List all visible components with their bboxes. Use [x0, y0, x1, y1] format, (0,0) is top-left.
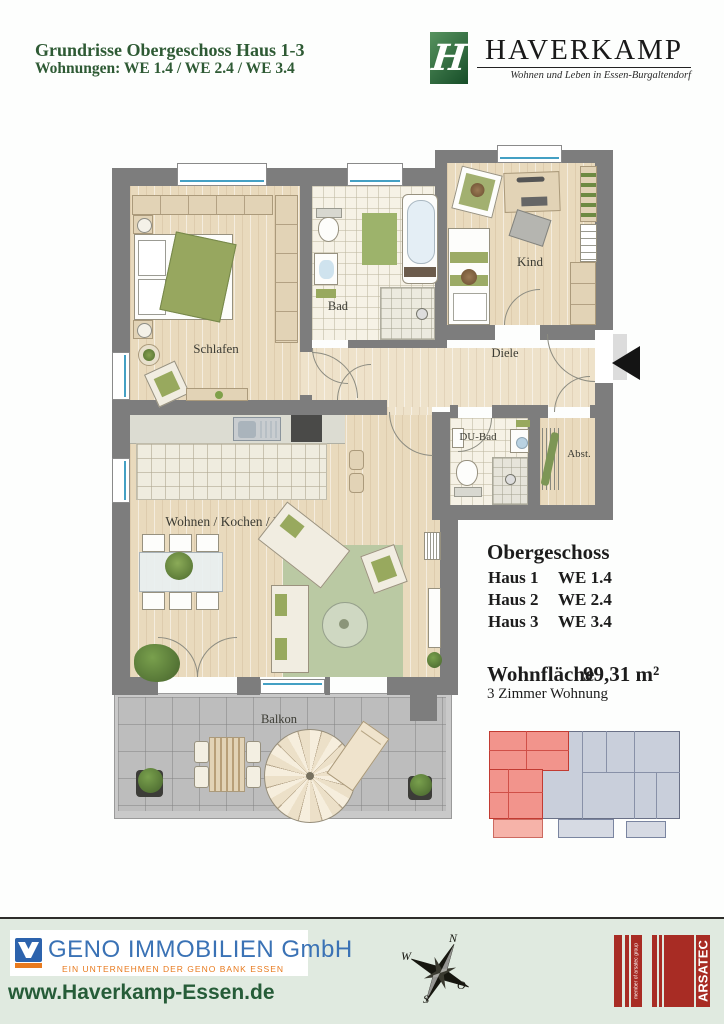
- geno-orange-bar: [15, 963, 42, 968]
- kitchen-island: [136, 443, 327, 500]
- floor-door-gap-schlafen: [300, 352, 312, 398]
- balcony-chair-3: [246, 741, 261, 763]
- info-area-label: Wohnfläche: [487, 662, 594, 687]
- dining-chair-4: [142, 592, 165, 610]
- info-floor-title: Obergeschoss: [487, 540, 610, 565]
- wall-bad-bottom-a: [300, 340, 312, 348]
- website-link[interactable]: www.Haverkamp-Essen.de: [8, 981, 275, 1005]
- shelf-kind: [580, 224, 597, 262]
- info-house-3: Haus 3: [488, 612, 539, 632]
- sink-bad: [314, 253, 338, 285]
- monogram-letter: H: [430, 37, 468, 79]
- wall-diele-south-a: [450, 405, 458, 418]
- info-house-2: Haus 2: [488, 590, 539, 610]
- window-kind: [497, 145, 562, 163]
- wall-dubad-left: [432, 412, 450, 510]
- wall-schlafen-bad: [300, 186, 312, 352]
- flyer-page: Grundrisse Obergeschoss Haus 1-3 Wohnung…: [0, 0, 724, 1024]
- overview-line-2: [634, 731, 635, 819]
- room-label-balkon: Balkon: [253, 712, 305, 727]
- window-schlafen-west: [112, 352, 130, 400]
- bath-rug: [362, 213, 397, 265]
- window-wohnen-west: [112, 458, 130, 503]
- wall-left: [112, 168, 130, 695]
- wall-living-bottom-d: [387, 677, 458, 695]
- wall-kind-bottom-a: [435, 325, 495, 340]
- arsatec-suffix: GmbH: [694, 936, 700, 950]
- page-subtitle: Wohnungen: WE 1.4 / WE 2.4 / WE 3.4: [35, 60, 295, 78]
- wall-bad-bottom-b: [348, 340, 435, 348]
- overview-red-line-4: [489, 792, 543, 793]
- bed-kind: [448, 228, 490, 325]
- balcony-chair-4: [246, 766, 261, 788]
- table-plant: [165, 552, 193, 580]
- dining-chair-5: [169, 592, 192, 610]
- small-plant: [427, 652, 442, 668]
- wall-diele-south-b: [492, 405, 548, 418]
- window-bad: [347, 163, 403, 186]
- wardrobe-right: [275, 195, 298, 343]
- page-title: Grundrisse Obergeschoss Haus 1-3: [35, 40, 305, 61]
- compass-n: N: [449, 931, 457, 946]
- overview-red-line-1: [489, 750, 569, 751]
- overview-line-3: [582, 772, 680, 773]
- wall-diele-south-c: [590, 405, 595, 418]
- info-unit-1: WE 1.4: [558, 568, 612, 588]
- dining-chair-1: [142, 534, 165, 552]
- overview-balcony-mid: [558, 819, 614, 838]
- desk-kind: [503, 171, 560, 213]
- towel-bad: [316, 289, 336, 298]
- wall-balcony-stub: [410, 695, 437, 721]
- toilet-bad: [318, 217, 339, 242]
- overview-unit-red-top: [489, 731, 569, 771]
- floor-plant: [134, 644, 180, 682]
- geno-company-name: GENO IMMOBILIEN GmbH: [48, 936, 353, 964]
- dining-chair-2: [169, 534, 192, 552]
- wall-right-upper: [595, 163, 613, 330]
- blanket: [159, 231, 236, 322]
- stool-2: [349, 473, 364, 493]
- brand-tagline: Wohnen und Leben in Essen-Burgaltendorf: [477, 70, 691, 81]
- overview-red-line-2: [526, 731, 527, 769]
- room-label-diele: Diele: [480, 346, 530, 361]
- wardrobe-top: [132, 195, 273, 215]
- compass-o: O: [457, 978, 466, 993]
- sideboard-schlafen: [186, 388, 248, 401]
- balcony-chair-1: [194, 741, 209, 763]
- wall-board: [428, 588, 441, 648]
- shower-dubad: [492, 457, 528, 505]
- entrance-gap: [595, 330, 613, 383]
- wall-living-right: [440, 505, 458, 695]
- radiator: [424, 532, 441, 560]
- bed: [134, 234, 233, 320]
- entrance-arrow-icon: [612, 346, 640, 380]
- overview-line-5: [656, 772, 657, 819]
- wall-living-bottom-b: [237, 677, 260, 695]
- room-label-kind: Kind: [505, 254, 555, 270]
- stool-1: [349, 450, 364, 470]
- overview-unit-red-bottom: [489, 769, 543, 819]
- wall-right-lower: [595, 383, 613, 510]
- wall-kitchen-top: [112, 400, 387, 415]
- overview-balcony-red: [493, 819, 543, 838]
- side-table: [138, 344, 160, 366]
- compass-s: S: [423, 992, 429, 1007]
- washer-dubad: [510, 429, 529, 453]
- room-label-dubad: DU-Bad: [454, 431, 502, 443]
- info-area-value: 99,31 m²: [583, 662, 659, 687]
- toilet-tank-dubad: [454, 487, 482, 497]
- info-apartment-type: 3 Zimmer Wohnung: [487, 686, 608, 703]
- bookshelf-kind: [580, 166, 597, 222]
- geno-logo: GENO IMMOBILIEN GmbH EIN UNTERNEHMEN DER…: [10, 930, 308, 976]
- arsatec-bar: [614, 935, 622, 1007]
- info-unit-3: WE 3.4: [558, 612, 612, 632]
- wall-living-bottom-c: [325, 677, 330, 695]
- overview-balcony-right: [626, 821, 666, 838]
- geno-company-subtitle: EIN UNTERNEHMEN DER GENO BANK ESSEN: [62, 964, 284, 974]
- dining-chair-6: [196, 592, 219, 610]
- room-label-bad: Bad: [316, 299, 360, 314]
- pillow-1: [138, 240, 166, 276]
- balcony-table: [209, 737, 245, 792]
- toilet-dubad: [456, 460, 478, 486]
- overview-line-1: [582, 731, 583, 819]
- info-unit-2: WE 2.4: [558, 590, 612, 610]
- balcony-plant-right: [410, 774, 432, 796]
- arsatec-gap: [642, 935, 652, 1007]
- arsatec-block: [664, 935, 694, 1007]
- kitchen-stove: [291, 415, 322, 442]
- compass-star-icon: [395, 928, 485, 1018]
- compass-rose: N W O S: [395, 928, 485, 1018]
- dining-chair-3: [196, 534, 219, 552]
- balcony-chair-2: [194, 766, 209, 788]
- overview-plan: [486, 728, 682, 845]
- arsatec-tagline: member of arsatec group: [631, 935, 642, 1007]
- cabinet-kind: [570, 262, 596, 325]
- wall-south-block: [432, 505, 613, 520]
- room-label-schlafen: Schlafen: [166, 341, 266, 357]
- kitchen-sink: [233, 417, 281, 441]
- teddy-icon: [461, 269, 477, 285]
- sofa-body: [271, 585, 309, 673]
- wall-dubad-abst: [528, 418, 540, 505]
- geno-bank-icon: [15, 938, 42, 962]
- coffee-table: [322, 602, 368, 648]
- compass-w: W: [401, 949, 411, 964]
- towel-dubad: [516, 420, 530, 427]
- haverkamp-logo: H HAVERKAMP Wohnen und Leben in Essen-Bu…: [430, 30, 692, 82]
- brand-name: HAVERKAMP: [476, 34, 692, 64]
- shower-bad: [380, 287, 435, 340]
- room-label-abst: Abst.: [558, 448, 600, 460]
- balcony-plant-left: [138, 768, 163, 793]
- info-house-1: Haus 1: [488, 568, 539, 588]
- haverkamp-monogram-icon: H: [430, 32, 468, 84]
- brand-rule: [477, 67, 691, 68]
- nightstand-2: [133, 320, 153, 339]
- overview-red-line-3: [508, 769, 509, 819]
- window-schlafen: [177, 163, 267, 186]
- bathtub: [402, 194, 438, 284]
- overview-line-4: [606, 731, 607, 772]
- nightstand-1: [133, 215, 153, 234]
- window-balkon: [260, 679, 325, 694]
